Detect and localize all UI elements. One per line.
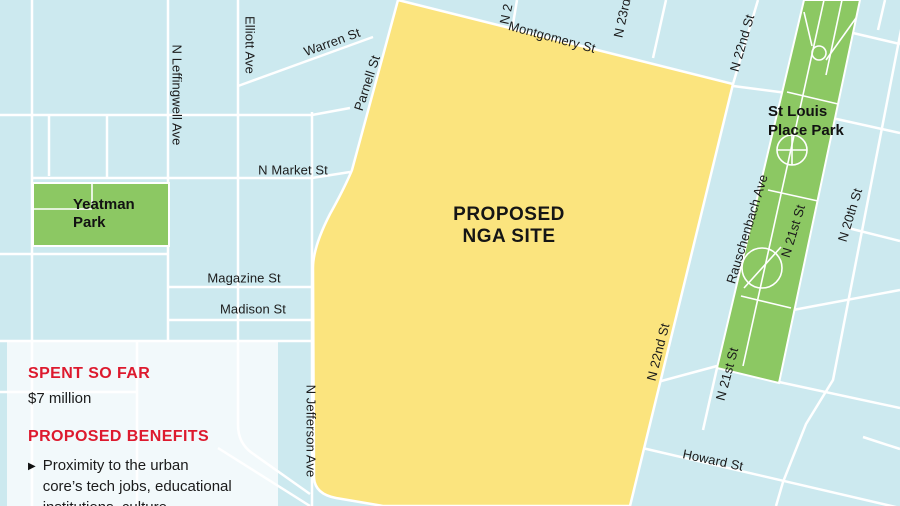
- yeatman-park-label: Yeatman Park: [73, 196, 135, 232]
- bullet-triangle-icon: ▶: [28, 455, 43, 506]
- street-label-jefferson: N Jefferson Ave: [304, 385, 319, 478]
- spent-heading: SPENT SO FAR: [28, 365, 278, 383]
- info-panel: SPENT SO FAR $7 million PROPOSED BENEFIT…: [7, 341, 278, 506]
- nga-site-map: Warren St Parnell St N Leffingwell Ave E…: [0, 0, 900, 506]
- street-label-elliott: Elliott Ave: [243, 16, 258, 74]
- benefit-line: Proximity to the urban: [43, 455, 232, 476]
- benefits-heading: PROPOSED BENEFITS: [28, 428, 278, 446]
- street-label-magazine: Magazine St: [207, 271, 280, 286]
- street-label-madison: Madison St: [220, 302, 286, 317]
- nga-site-label: PROPOSED NGA SITE: [453, 204, 565, 248]
- stlouis-park-label: St Louis Place Park: [768, 102, 844, 140]
- benefit-item: ▶ Proximity to the urban core’s tech job…: [28, 455, 278, 506]
- street-label-leffingwell: N Leffingwell Ave: [170, 45, 185, 146]
- street-label-market: N Market St: [258, 163, 328, 178]
- benefit-line: core’s tech jobs, educational: [43, 476, 232, 497]
- benefit-text: Proximity to the urban core’s tech jobs,…: [43, 455, 232, 506]
- benefit-line: institutions, culture: [43, 497, 232, 506]
- spent-value: $7 million: [28, 390, 278, 407]
